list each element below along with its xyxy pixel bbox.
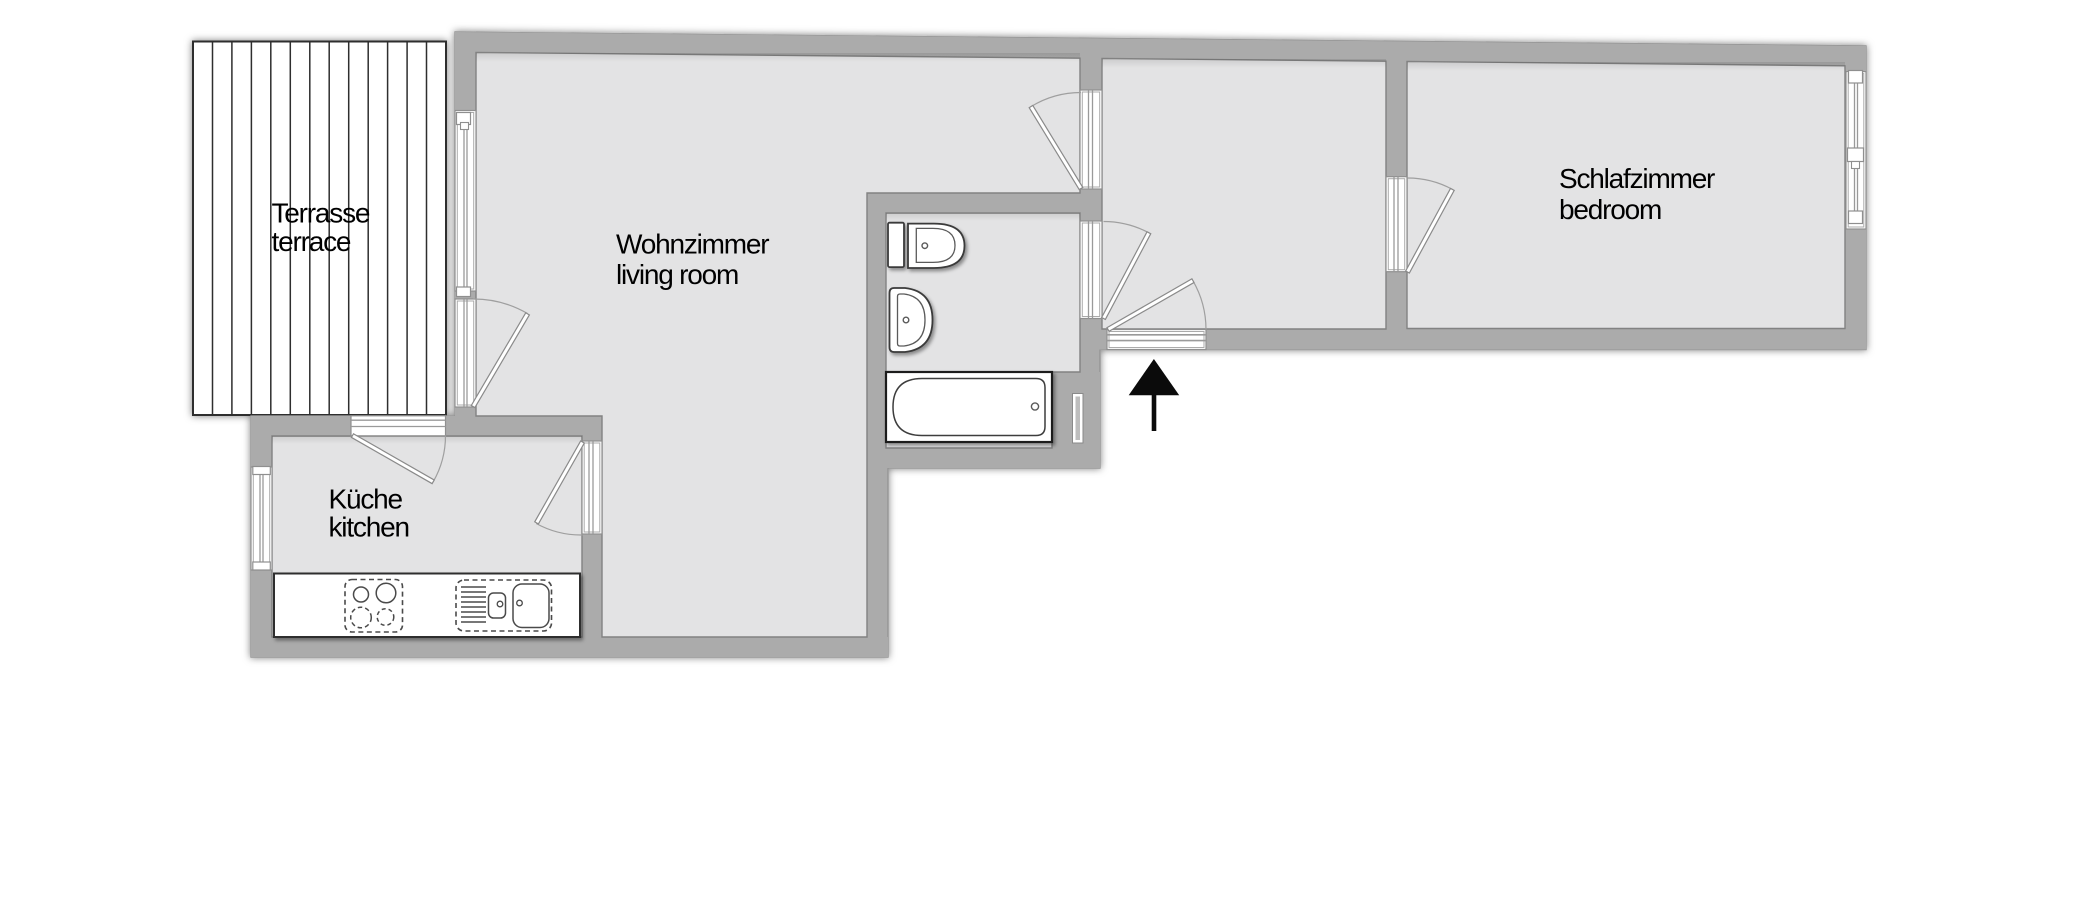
svg-text:Küche: Küche (329, 484, 403, 515)
svg-text:Terrasse: Terrasse (272, 197, 370, 228)
svg-text:kitchen: kitchen (329, 512, 409, 543)
svg-text:living room: living room (616, 259, 738, 290)
svg-text:bedroom: bedroom (1559, 194, 1661, 225)
svg-text:terrace: terrace (272, 226, 351, 257)
svg-text:Schlafzimmer: Schlafzimmer (1559, 163, 1715, 194)
svg-text:Wohnzimmer: Wohnzimmer (616, 228, 769, 259)
